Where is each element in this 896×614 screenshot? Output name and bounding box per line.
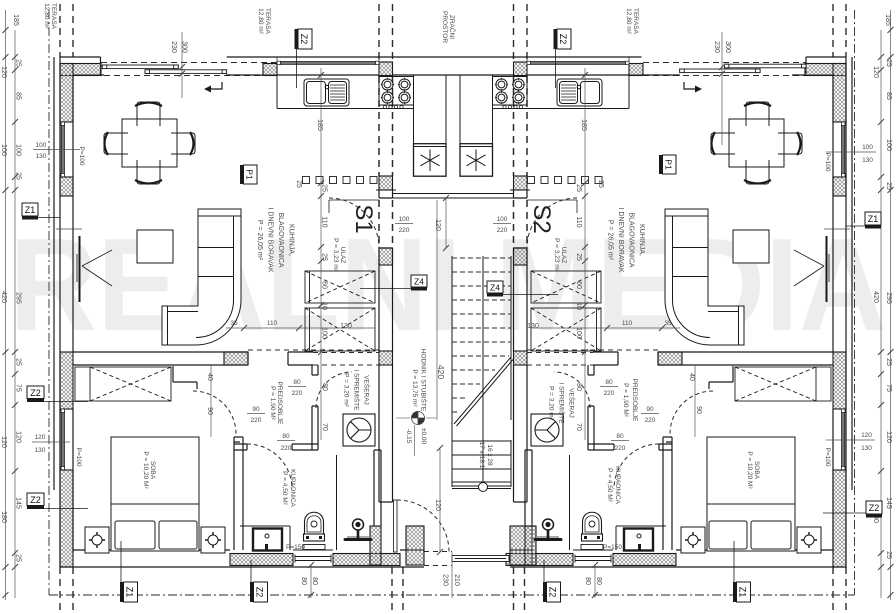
svg-text:180: 180 [0,511,7,523]
svg-text:80: 80 [575,383,582,391]
svg-text:KUPAONICA: KUPAONICA [614,466,621,504]
svg-text:25: 25 [15,59,22,67]
svg-text:230: 230 [442,574,449,586]
svg-text:25: 25 [321,184,328,192]
svg-text:85: 85 [15,92,22,100]
svg-text:25: 25 [295,180,302,188]
svg-text:17 x 18,1: 17 x 18,1 [478,442,485,469]
svg-text:VEŠERAJ: VEŠERAJ [363,375,372,405]
svg-text:70: 70 [575,423,582,431]
svg-text:SOBA: SOBA [753,461,760,480]
svg-text:P = 3,23 m²: P = 3,23 m² [332,238,339,272]
svg-text:220: 220 [497,227,508,234]
svg-text:300: 300 [181,41,188,53]
svg-text:25: 25 [885,551,892,559]
svg-text:90: 90 [252,406,260,413]
svg-text:100: 100 [321,327,328,339]
svg-text:TERASA: TERASA [632,8,639,35]
svg-text:P = 3,20 m²: P = 3,20 m² [548,386,555,420]
svg-text:25: 25 [15,172,22,180]
svg-text:P = 26,05 m²: P = 26,05 m² [607,220,614,261]
svg-text:12,80 m²: 12,80 m² [43,3,50,29]
svg-text:P1: P1 [664,159,674,170]
svg-text:110: 110 [575,216,582,227]
svg-text:10: 10 [575,302,582,310]
svg-text:220: 220 [251,417,262,424]
svg-text:220: 220 [615,445,626,452]
svg-text:35: 35 [664,320,672,327]
svg-text:100: 100 [497,216,508,223]
svg-text:220: 220 [399,227,410,234]
svg-text:145: 145 [15,497,22,509]
svg-text:ULAZ: ULAZ [339,247,346,264]
svg-text:130: 130 [35,447,46,454]
svg-text:35: 35 [230,320,238,327]
svg-text:P=100: P=100 [75,448,82,467]
svg-text:230: 230 [713,41,720,53]
svg-text:80: 80 [584,577,591,585]
svg-text:100: 100 [15,144,22,156]
svg-text:P = 3,23 m²: P = 3,23 m² [553,238,560,272]
svg-text:90: 90 [695,406,702,414]
svg-text:KUHINJA,: KUHINJA, [288,224,295,256]
svg-text:Z2: Z2 [299,34,309,45]
svg-text:70: 70 [321,423,328,431]
svg-text:PREDSOBLJE: PREDSOBLJE [631,379,638,423]
svg-text:295: 295 [885,292,892,304]
svg-text:PROSTOR: PROSTOR [441,11,448,43]
svg-text:110: 110 [321,216,328,227]
svg-text:145: 145 [885,497,892,509]
svg-text:85: 85 [885,92,892,100]
svg-text:110: 110 [622,320,633,327]
svg-text:80: 80 [311,577,318,585]
svg-text:S2: S2 [528,204,555,233]
svg-text:25: 25 [575,253,582,261]
svg-text:P = 10,20 M²: P = 10,20 M² [746,451,753,489]
svg-text:300: 300 [724,41,731,53]
svg-text:I DNEVNI BORAVAK: I DNEVNI BORAVAK [617,207,624,272]
svg-text:Z2: Z2 [255,587,265,598]
svg-text:P = 3,20 m²: P = 3,20 m² [343,373,350,407]
svg-text:I SPREMIŠTE: I SPREMIŠTE [353,369,362,411]
svg-text:P=150: P=150 [603,544,622,551]
svg-text:60: 60 [575,281,582,289]
svg-text:75: 75 [885,384,892,392]
svg-text:210: 210 [453,574,460,586]
svg-text:420: 420 [0,291,7,303]
svg-text:P = 1,90 M²: P = 1,90 M² [622,383,629,417]
svg-text:220: 220 [281,445,292,452]
svg-text:PREDSOBLJE: PREDSOBLJE [276,382,283,426]
svg-text:VEŠERAJ: VEŠERAJ [568,388,577,418]
svg-text:100: 100 [36,142,47,149]
svg-text:16 x 28: 16 x 28 [486,444,493,466]
svg-text:130: 130 [36,153,47,160]
svg-text:Z2: Z2 [30,388,41,398]
svg-text:220: 220 [292,390,303,397]
svg-text:420: 420 [436,365,446,379]
svg-text:120: 120 [15,431,22,443]
svg-text:120: 120 [861,432,872,439]
svg-text:100: 100 [862,144,873,151]
svg-text:40: 40 [206,373,213,381]
svg-text:Z2: Z2 [30,495,41,505]
svg-text:KUPAONICA: KUPAONICA [289,469,296,507]
svg-text:TERASA: TERASA [264,8,271,35]
svg-text:130: 130 [340,323,352,330]
svg-text:100: 100 [885,139,892,151]
svg-text:230: 230 [170,41,177,53]
svg-text:P=100: P=100 [824,153,831,172]
svg-text:60: 60 [321,281,328,289]
svg-text:HODNIK I STUBIŠTE: HODNIK I STUBIŠTE [420,349,429,412]
svg-text:TERASA: TERASA [50,3,57,30]
svg-text:130: 130 [527,323,539,330]
svg-text:Z4: Z4 [490,283,500,293]
svg-text:ZRAČNI: ZRAČNI [448,15,457,39]
svg-text:185: 185 [12,14,19,26]
svg-text:Z2: Z2 [558,34,568,45]
svg-text:SOBA: SOBA [149,461,156,480]
svg-text:420: 420 [872,291,879,303]
svg-text:25: 25 [321,253,328,261]
svg-text:±0,00: ±0,00 [420,428,427,445]
svg-text:S1: S1 [350,204,377,233]
svg-text:80: 80 [605,379,613,386]
svg-text:Z1: Z1 [738,587,748,598]
svg-text:-0,15: -0,15 [405,429,412,444]
svg-text:P=100: P=100 [824,448,831,467]
svg-text:185: 185 [316,119,323,131]
svg-text:P=150: P=150 [286,544,305,551]
svg-text:12,80 m²: 12,80 m² [257,8,264,34]
svg-text:ULAZ: ULAZ [560,247,567,264]
svg-text:25: 25 [885,59,892,67]
svg-text:Z1: Z1 [125,587,135,598]
svg-text:P=100: P=100 [78,147,85,166]
svg-text:KUHINJA,: KUHINJA, [638,224,645,256]
svg-text:90: 90 [206,407,213,415]
svg-text:Z2: Z2 [869,503,880,513]
svg-text:90: 90 [646,406,654,413]
svg-text:100: 100 [575,327,582,339]
svg-text:25: 25 [575,184,582,192]
svg-text:Z4: Z4 [414,277,424,287]
svg-text:Z1: Z1 [868,214,879,224]
svg-text:130: 130 [861,445,872,452]
svg-text:P = 4,50 M²: P = 4,50 M² [281,471,288,505]
svg-text:80: 80 [616,433,624,440]
svg-text:120: 120 [0,66,7,78]
svg-text:185: 185 [580,119,587,131]
svg-text:120: 120 [35,434,46,441]
svg-text:220: 220 [645,417,656,424]
svg-text:80: 80 [321,383,328,391]
svg-text:100: 100 [0,144,7,156]
svg-text:185: 185 [884,14,891,26]
svg-text:80: 80 [293,379,301,386]
svg-text:P = 10,20 M²: P = 10,20 M² [142,451,149,489]
svg-text:BLAGOVAONICA: BLAGOVAONICA [277,212,284,267]
svg-text:75: 75 [15,384,22,392]
svg-text:P1: P1 [245,169,255,180]
svg-text:P = 1,90 M²: P = 1,90 M² [269,386,276,420]
svg-text:10: 10 [321,302,328,310]
svg-text:120: 120 [885,431,892,443]
svg-text:I DNEVNI BORAVAK: I DNEVNI BORAVAK [267,207,274,272]
svg-text:120: 120 [434,499,441,511]
svg-text:P = 13,75 m²: P = 13,75 m² [411,369,418,407]
svg-text:130: 130 [862,157,873,164]
svg-text:25: 25 [597,180,604,188]
svg-text:12,80 m²: 12,80 m² [625,8,632,34]
svg-text:120: 120 [434,219,441,231]
svg-text:120: 120 [872,66,879,78]
svg-text:I SPREMIŠTE: I SPREMIŠTE [558,382,567,424]
svg-text:25: 25 [15,554,22,562]
svg-text:120: 120 [0,436,7,448]
svg-text:80: 80 [282,433,290,440]
svg-text:Z2: Z2 [548,587,558,598]
svg-text:80: 80 [595,577,602,585]
svg-text:25: 25 [885,358,892,366]
svg-text:295: 295 [15,292,22,304]
svg-text:110: 110 [267,320,278,327]
svg-text:P = 4,50 M²: P = 4,50 M² [606,468,613,502]
svg-text:220: 220 [604,390,615,397]
svg-text:25: 25 [885,182,892,190]
svg-text:Z1: Z1 [25,205,36,215]
svg-text:BLAGOVAONICA: BLAGOVAONICA [628,212,635,267]
svg-text:100: 100 [399,216,410,223]
svg-text:25: 25 [15,358,22,366]
svg-text:40: 40 [688,373,695,381]
svg-text:80: 80 [300,577,307,585]
svg-text:P = 26,05 m²: P = 26,05 m² [256,220,263,261]
